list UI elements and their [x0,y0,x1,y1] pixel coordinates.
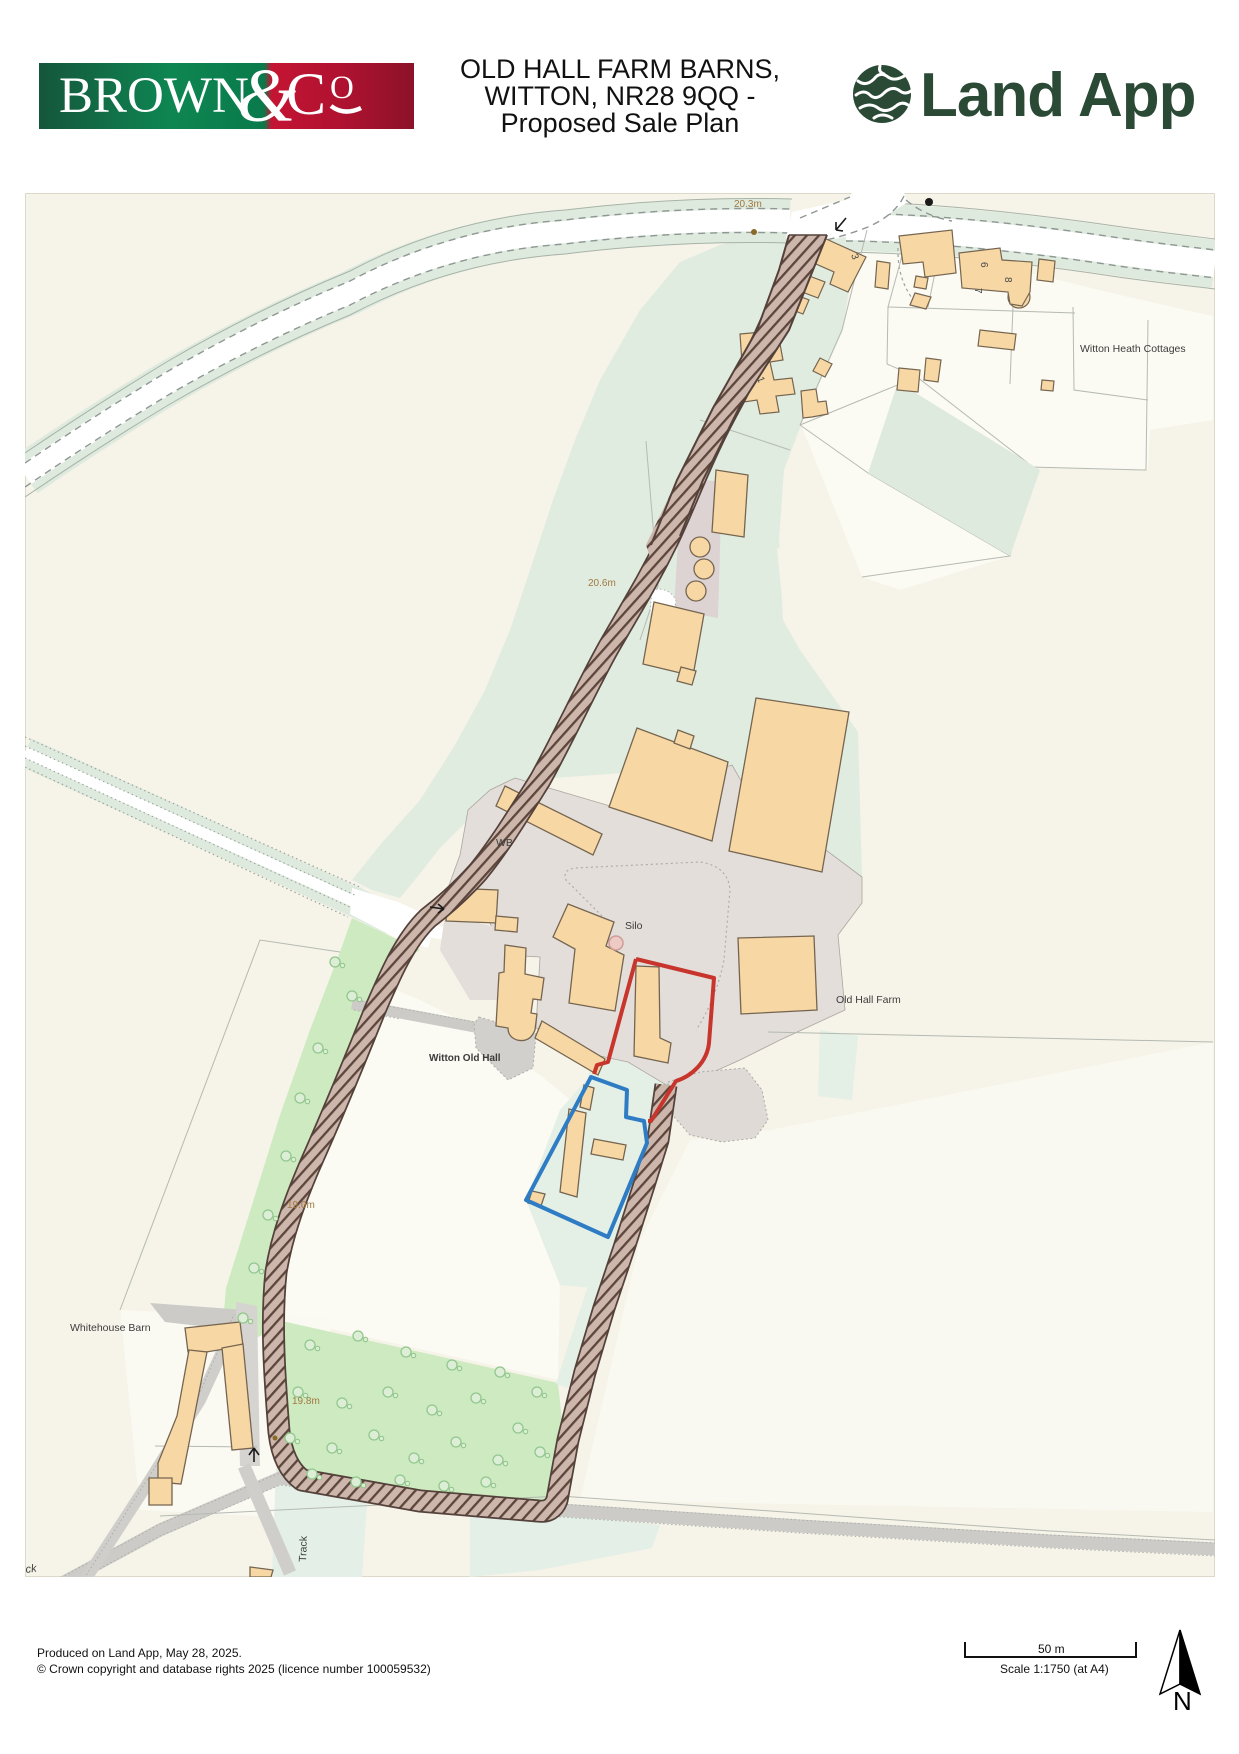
svg-text:7: 7 [972,288,983,294]
svg-text:Witton Heath Cottages: Witton Heath Cottages [1080,343,1186,355]
svg-text:Witton Old Hall: Witton Old Hall [429,1053,501,1064]
svg-text:C: C [286,63,326,127]
svg-text:O: O [330,70,354,106]
svg-text:Scale 1:1750 (at A4): Scale 1:1750 (at A4) [1000,1662,1109,1676]
svg-text:Silo: Silo [625,920,643,932]
svg-text:ck: ck [25,1562,38,1575]
svg-text:Track: Track [297,1535,310,1562]
svg-text:Land App: Land App [920,61,1196,130]
svg-text:Whitehouse Barn: Whitehouse Barn [70,1322,151,1334]
svg-text:20.6m: 20.6m [588,578,616,589]
svg-text:WB: WB [496,837,513,849]
svg-text:20.3m: 20.3m [734,199,762,210]
svg-text:BROWN: BROWN [59,68,249,124]
svg-text:N: N [1173,1686,1192,1712]
svg-text:19.0m: 19.0m [287,1200,315,1211]
svg-text:50 m: 50 m [1038,1642,1065,1656]
svg-text:Old Hall Farm: Old Hall Farm [836,994,901,1006]
svg-text:19.8m: 19.8m [292,1396,320,1407]
svg-text:8: 8 [1002,277,1013,283]
svg-text:6: 6 [978,262,989,268]
